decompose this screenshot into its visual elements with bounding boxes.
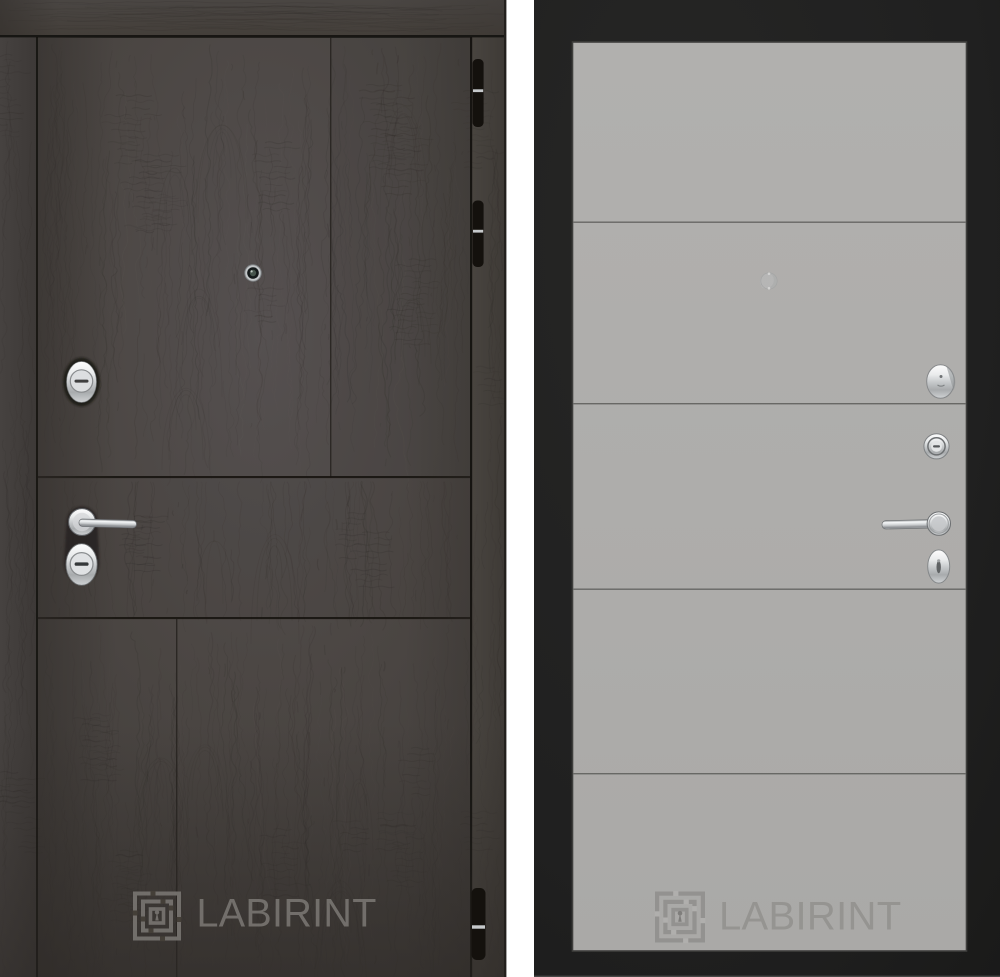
svg-text:LABIRINT: LABIRINT — [719, 895, 901, 939]
svg-text:LABIRINT: LABIRINT — [197, 892, 377, 936]
